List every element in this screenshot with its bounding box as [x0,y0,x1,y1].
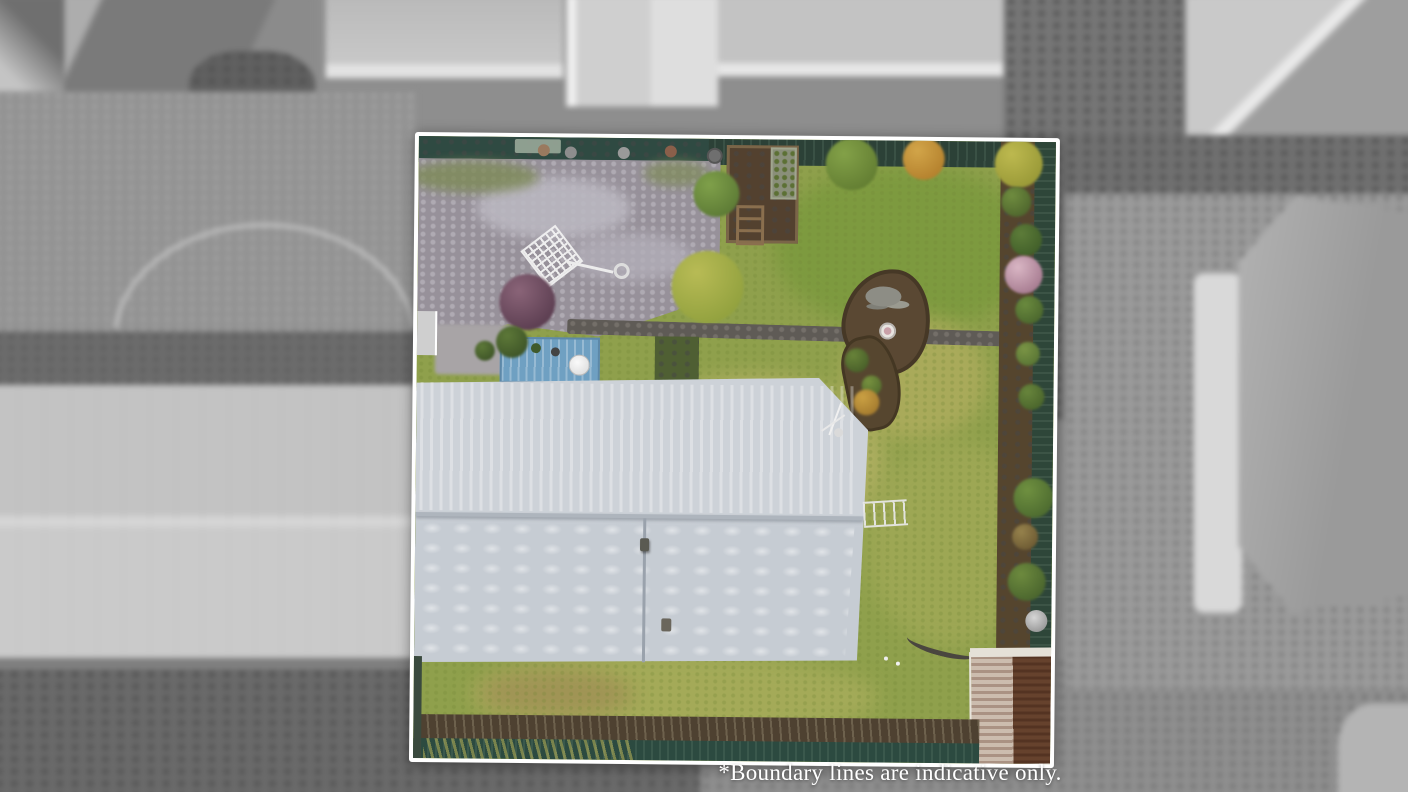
shrub-pink-flowering [1004,256,1042,294]
shrub-large-center [671,250,744,323]
pot [665,145,677,157]
pot [565,146,577,158]
shrub [475,341,495,361]
shrub [1015,296,1043,324]
pot [538,144,550,156]
deck-pot-plant [531,343,541,353]
neighbor-long-roof-left [0,385,415,665]
shrub [825,138,877,190]
neighbor-roof-diagonal [1186,0,1408,145]
bed-plant-golden [853,389,879,415]
white-speck [884,657,888,661]
shed-ridge-cap [970,647,1054,657]
roof-streaks-upper [419,382,856,514]
aerial-photo: *Boundary lines are indicative only. [0,0,1408,792]
pot [707,148,723,164]
deck-pot [551,347,560,356]
shrub [693,171,739,217]
shrub-purple [499,274,556,331]
shrub [1001,187,1031,217]
neighbor-building-white [566,0,718,107]
chimney-vent-1 [640,538,649,551]
hedge-band-left [0,331,417,390]
shrub [496,326,528,358]
fence-left-lower [413,656,422,758]
white-speck [896,662,900,666]
pot [618,147,630,159]
neighbor-roof-light-1 [326,0,564,78]
planting-strip-mid [655,336,699,382]
shrub-yellow [994,140,1042,188]
raised-planter [770,147,796,199]
white-path-right [1194,274,1243,613]
wood-frame [736,205,764,245]
neighbor-roof-right [1238,196,1408,613]
roof-mottle-lower [416,518,859,662]
shrub-golden [903,138,945,180]
clothesline-rack [863,499,908,528]
shrub-brown [1012,524,1038,550]
fence-bottom-yellow-streaks [423,738,633,760]
shrub [1008,563,1046,601]
shrub [1016,342,1040,366]
rusty-shed-roof [969,651,1054,766]
shed-corner-left-edge [417,311,437,355]
property-boundary-outline [409,132,1060,768]
shrub [1018,384,1044,410]
bed-plant [845,348,869,372]
boundary-disclaimer-caption: *Boundary lines are indicative only. [640,760,1140,786]
hedge-band-right [1064,135,1408,194]
chimney-vent-2 [661,618,671,631]
neighbor-roof-light-2 [718,0,1011,76]
shrub [1013,478,1053,518]
birdbath [879,322,896,339]
neighbor-roof-top-left-corner [0,0,67,96]
watering-can [1025,610,1047,632]
outdoor-table [569,354,590,375]
light-corner-bottom-right [1338,704,1408,792]
satellite-dish [834,428,843,437]
rock-pile [865,286,901,306]
shrub [1010,224,1042,256]
planter-ring [614,263,630,279]
